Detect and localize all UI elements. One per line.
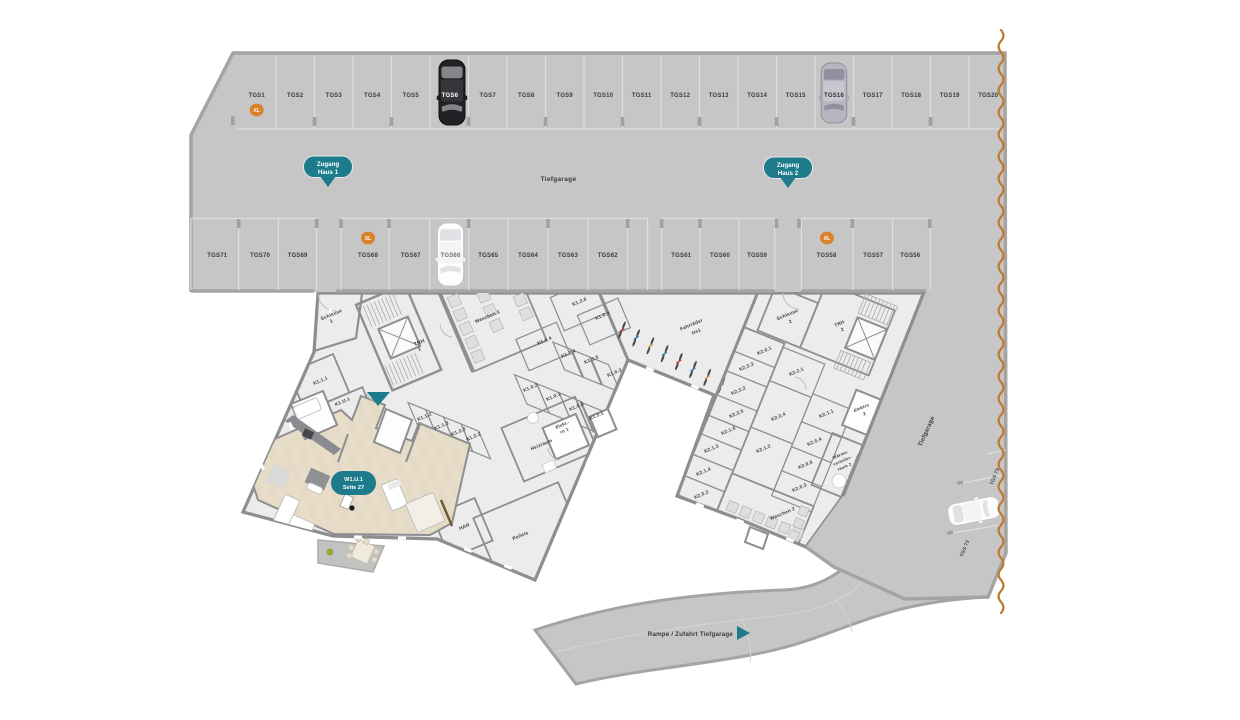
svg-text:TGS63: TGS63 (558, 253, 578, 259)
svg-text:TGS7: TGS7 (479, 93, 496, 99)
svg-text:Seite 27: Seite 27 (343, 485, 364, 491)
svg-text:TGS61: TGS61 (671, 253, 691, 259)
svg-text:TGS60: TGS60 (710, 253, 730, 259)
svg-text:TGS14: TGS14 (747, 93, 767, 99)
svg-text:Tiefgarage: Tiefgarage (541, 176, 577, 183)
svg-text:TGS1: TGS1 (248, 93, 265, 99)
svg-text:TGS62: TGS62 (598, 253, 618, 259)
svg-text:TGS8: TGS8 (518, 93, 535, 99)
svg-text:TGS65: TGS65 (478, 253, 498, 259)
svg-text:TGS16: TGS16 (824, 93, 844, 99)
svg-text:TGS5: TGS5 (402, 93, 419, 99)
svg-text:TGS4: TGS4 (364, 93, 381, 99)
svg-text:Haus 2: Haus 2 (778, 170, 799, 177)
svg-text:TGS68: TGS68 (358, 253, 378, 259)
svg-text:TGS13: TGS13 (709, 93, 729, 99)
svg-text:TGS6: TGS6 (442, 93, 459, 99)
svg-text:TGS19: TGS19 (940, 93, 960, 99)
svg-text:XL: XL (824, 236, 830, 242)
svg-text:TGS20: TGS20 (978, 93, 998, 99)
svg-text:TGS57: TGS57 (863, 253, 883, 259)
svg-text:Haus 1: Haus 1 (318, 169, 339, 176)
svg-text:TGS59: TGS59 (747, 253, 767, 259)
svg-text:TGS56: TGS56 (900, 253, 920, 259)
svg-text:TGS12: TGS12 (670, 93, 690, 99)
svg-text:TGS9: TGS9 (556, 93, 573, 99)
svg-text:W1.U.1: W1.U.1 (344, 477, 363, 483)
svg-text:TGS64: TGS64 (518, 253, 538, 259)
svg-text:TGS11: TGS11 (632, 93, 652, 99)
svg-text:TGS71: TGS71 (207, 253, 227, 259)
svg-text:Zugang: Zugang (317, 161, 340, 168)
svg-text:TGS18: TGS18 (901, 93, 921, 99)
svg-text:XL: XL (365, 236, 371, 242)
svg-text:TGS2: TGS2 (287, 93, 304, 99)
svg-text:Zugang: Zugang (777, 162, 800, 169)
svg-text:XL: XL (254, 108, 260, 114)
svg-text:TGS58: TGS58 (816, 253, 836, 259)
svg-text:TGS69: TGS69 (288, 253, 308, 259)
svg-text:TGS70: TGS70 (250, 253, 270, 259)
svg-text:TGS10: TGS10 (593, 93, 613, 99)
svg-text:TGS15: TGS15 (786, 93, 806, 99)
svg-text:TGS3: TGS3 (325, 93, 342, 99)
svg-text:Rampe / Zufahrt Tiefgarage: Rampe / Zufahrt Tiefgarage (648, 631, 734, 638)
svg-text:TGS67: TGS67 (401, 253, 421, 259)
svg-text:TGS17: TGS17 (863, 93, 883, 99)
svg-text:TGS66: TGS66 (440, 253, 460, 259)
